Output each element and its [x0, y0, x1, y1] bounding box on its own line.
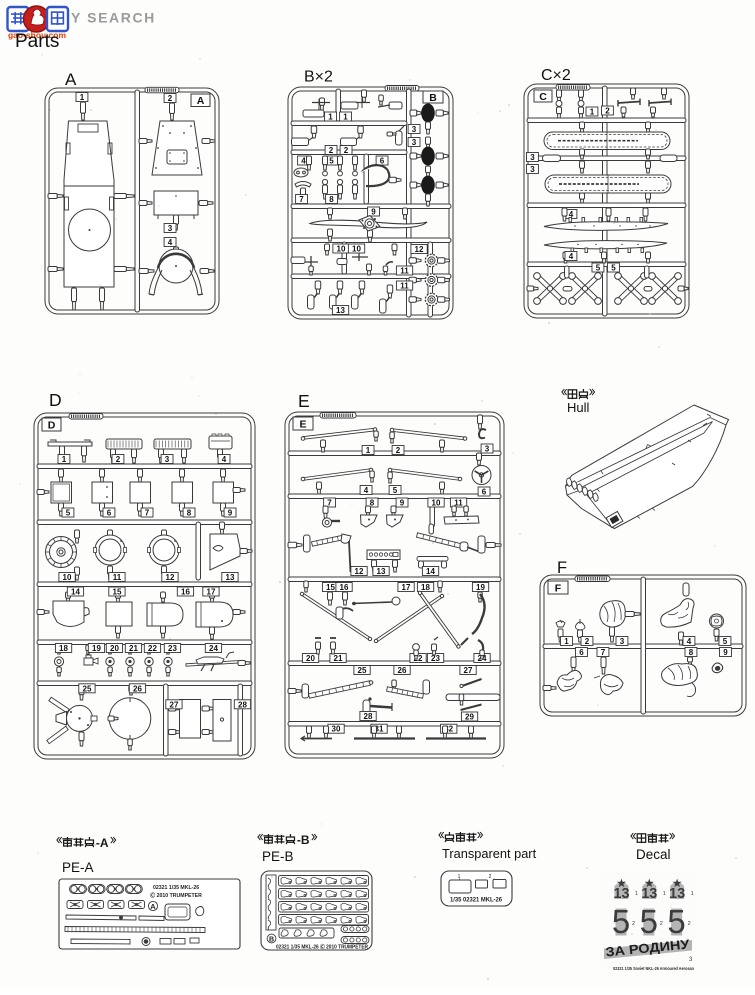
svg-text:17: 17: [207, 588, 216, 597]
svg-text:-A: -A: [96, 836, 109, 850]
svg-text:4: 4: [569, 252, 574, 261]
svg-text:1: 1: [691, 891, 694, 897]
svg-text:3: 3: [168, 224, 173, 233]
svg-text:5: 5: [612, 903, 630, 940]
svg-text:3: 3: [165, 455, 170, 464]
svg-text:25: 25: [83, 684, 92, 693]
svg-text:2: 2: [585, 637, 590, 646]
svg-text:13: 13: [641, 886, 657, 902]
svg-text:7: 7: [601, 648, 606, 657]
svg-text:3: 3: [620, 637, 625, 646]
svg-text:18: 18: [59, 644, 68, 653]
svg-text:5: 5: [329, 157, 334, 166]
svg-text:3: 3: [412, 125, 417, 134]
svg-text:10: 10: [352, 245, 361, 254]
svg-text:8: 8: [689, 648, 694, 657]
svg-text:E: E: [298, 391, 310, 411]
svg-text:8: 8: [329, 195, 334, 204]
svg-text:30: 30: [332, 725, 341, 734]
svg-text:1: 1: [635, 891, 638, 897]
svg-text:1: 1: [458, 874, 461, 880]
svg-text:1: 1: [62, 455, 67, 464]
svg-text:A: A: [197, 95, 205, 107]
svg-text:13: 13: [613, 886, 629, 902]
svg-text:9: 9: [228, 509, 233, 518]
svg-text:5: 5: [596, 264, 601, 273]
svg-text:28: 28: [364, 712, 373, 721]
svg-text:PE-B: PE-B: [262, 849, 294, 864]
svg-text:12: 12: [355, 567, 364, 576]
svg-text:5: 5: [667, 903, 685, 940]
svg-text:20: 20: [110, 644, 119, 653]
svg-text:13: 13: [226, 573, 235, 582]
svg-text:6: 6: [482, 488, 487, 497]
svg-text:4: 4: [364, 486, 369, 495]
svg-text:18: 18: [421, 583, 430, 592]
svg-text:5: 5: [66, 509, 71, 518]
svg-text:PE-A: PE-A: [62, 860, 94, 875]
svg-text:11: 11: [400, 267, 409, 276]
svg-text:D: D: [49, 390, 62, 410]
svg-text:3: 3: [485, 445, 490, 454]
svg-text:A: A: [150, 902, 156, 911]
svg-text:8: 8: [187, 509, 192, 518]
svg-text:3: 3: [530, 165, 535, 174]
svg-text:2: 2: [660, 921, 663, 927]
svg-text:15: 15: [113, 588, 122, 597]
svg-text:Hull: Hull: [567, 400, 590, 415]
svg-text:7: 7: [299, 195, 304, 204]
svg-text:1: 1: [328, 113, 333, 122]
svg-text:Decal: Decal: [636, 847, 671, 862]
svg-text:7: 7: [145, 509, 150, 518]
svg-text:6: 6: [380, 157, 385, 166]
svg-text:2: 2: [344, 146, 349, 155]
svg-text:27: 27: [464, 666, 473, 675]
svg-text:5: 5: [640, 903, 658, 940]
svg-text:02321 1/35 Soviet NKL-26 Armo: 02321 1/35 Soviet NKL-26 Armoured Aerosa…: [613, 966, 694, 971]
svg-text:22: 22: [148, 644, 157, 653]
svg-text:5: 5: [611, 264, 616, 273]
svg-text:C: C: [539, 91, 547, 103]
svg-text:4: 4: [301, 157, 306, 166]
svg-text:5: 5: [393, 486, 398, 495]
svg-text:11: 11: [400, 282, 409, 291]
svg-text:E: E: [299, 418, 306, 430]
svg-text:12: 12: [166, 573, 175, 582]
svg-text:2: 2: [688, 921, 691, 927]
svg-text:19: 19: [92, 644, 101, 653]
svg-text:02321 1/35 MKL-26 Ⓒ 2010 TRUMP: 02321 1/35 MKL-26 Ⓒ 2010 TRUMPETER: [276, 943, 368, 951]
svg-text:6: 6: [107, 509, 112, 518]
svg-text:21: 21: [334, 654, 343, 663]
svg-text:02321 1/35 MKL-26: 02321 1/35 MKL-26: [153, 885, 199, 891]
svg-text:25: 25: [358, 666, 367, 675]
svg-text:-B: -B: [297, 833, 310, 847]
svg-text:Ⓒ 2010 TRUMPETER: Ⓒ 2010 TRUMPETER: [150, 891, 202, 899]
svg-text:D: D: [48, 419, 56, 431]
svg-text:26: 26: [398, 666, 407, 675]
svg-text:10: 10: [337, 245, 346, 254]
svg-text:9: 9: [400, 499, 405, 508]
svg-text:4: 4: [222, 455, 227, 464]
svg-text:Parts: Parts: [15, 31, 59, 52]
svg-text:28: 28: [238, 700, 247, 709]
svg-text:B×2: B×2: [304, 69, 333, 86]
svg-text:4: 4: [687, 637, 692, 646]
svg-text:1: 1: [80, 93, 85, 102]
svg-text:11: 11: [113, 573, 122, 582]
svg-text:17: 17: [402, 583, 411, 592]
svg-text:10: 10: [63, 573, 72, 582]
svg-text:20: 20: [306, 654, 315, 663]
svg-text:1: 1: [663, 891, 666, 897]
svg-text:16: 16: [181, 588, 190, 597]
svg-text:B: B: [429, 92, 437, 104]
svg-text:10: 10: [432, 499, 441, 508]
svg-text:1: 1: [564, 637, 569, 646]
svg-text:Y SEARCH: Y SEARCH: [71, 10, 156, 26]
svg-text:13: 13: [669, 886, 685, 902]
svg-text:21: 21: [129, 644, 138, 653]
svg-text:9: 9: [723, 648, 728, 657]
svg-text:1: 1: [366, 446, 371, 455]
svg-text:24: 24: [209, 644, 218, 653]
svg-text:23: 23: [168, 644, 177, 653]
svg-text:3: 3: [412, 138, 417, 147]
svg-text:29: 29: [465, 713, 474, 722]
svg-text:3: 3: [530, 153, 535, 162]
svg-text:B: B: [269, 937, 274, 944]
svg-text:2: 2: [168, 94, 173, 103]
svg-text:2: 2: [396, 446, 401, 455]
svg-text:16: 16: [340, 583, 349, 592]
svg-text:2: 2: [632, 921, 635, 927]
svg-text:6: 6: [579, 648, 584, 657]
svg-text:2: 2: [605, 107, 610, 116]
svg-text:12: 12: [415, 245, 424, 254]
svg-text:2: 2: [116, 455, 121, 464]
svg-text:27: 27: [170, 700, 179, 709]
svg-text:15: 15: [326, 583, 335, 592]
svg-text:26: 26: [133, 684, 142, 693]
svg-text:2: 2: [489, 874, 492, 880]
svg-text:9: 9: [371, 208, 376, 217]
svg-text:13: 13: [336, 306, 345, 315]
svg-text:19: 19: [476, 583, 485, 592]
svg-text:A: A: [65, 70, 77, 89]
svg-text:1: 1: [590, 108, 595, 117]
svg-text:F: F: [557, 559, 567, 577]
svg-text:13: 13: [377, 567, 386, 576]
svg-text:14: 14: [426, 567, 435, 576]
svg-text:Transparent part: Transparent part: [442, 846, 537, 861]
svg-text:C×2: C×2: [541, 67, 571, 84]
svg-text:1: 1: [343, 113, 348, 122]
svg-text:F: F: [555, 582, 562, 594]
svg-text:5: 5: [723, 637, 728, 646]
svg-text:1/35 02321 MKL-26: 1/35 02321 MKL-26: [450, 898, 503, 904]
svg-text:2: 2: [329, 146, 334, 155]
svg-text:14: 14: [71, 588, 80, 597]
svg-text:4: 4: [168, 238, 173, 247]
